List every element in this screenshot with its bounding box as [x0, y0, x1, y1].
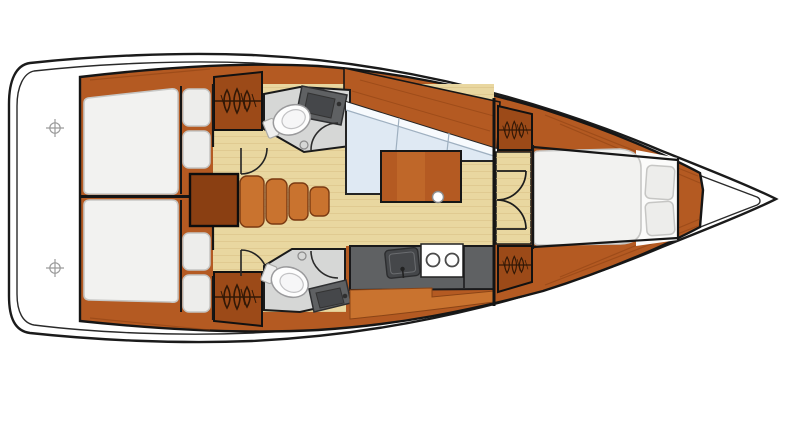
burner-icon	[446, 254, 459, 267]
berth-cushion	[183, 233, 210, 270]
saloon-table-leaf	[397, 152, 425, 201]
island-berth	[534, 149, 641, 245]
faucet-icon	[337, 102, 342, 107]
step	[310, 187, 329, 216]
berth-cushion	[645, 165, 675, 200]
forward-passage	[496, 152, 531, 244]
burner-icon	[427, 254, 440, 267]
engine-box	[190, 174, 238, 226]
forward-locker-port	[498, 106, 532, 150]
berth-cushion	[645, 201, 675, 236]
berth-cushion	[183, 89, 210, 126]
galley-sink	[385, 247, 421, 279]
berth-cushion	[183, 131, 210, 168]
step	[240, 176, 264, 227]
table-knob	[433, 192, 444, 203]
passage-planks	[496, 152, 531, 244]
berth-cushion	[183, 275, 210, 312]
step	[289, 183, 308, 220]
double-berth	[84, 200, 178, 302]
step	[266, 179, 287, 224]
faucet-icon	[343, 294, 348, 299]
forward-cabin	[533, 145, 678, 249]
yacht-floor-plan	[0, 0, 800, 446]
double-berth	[84, 89, 178, 194]
floor-plan-canvas	[0, 0, 800, 446]
